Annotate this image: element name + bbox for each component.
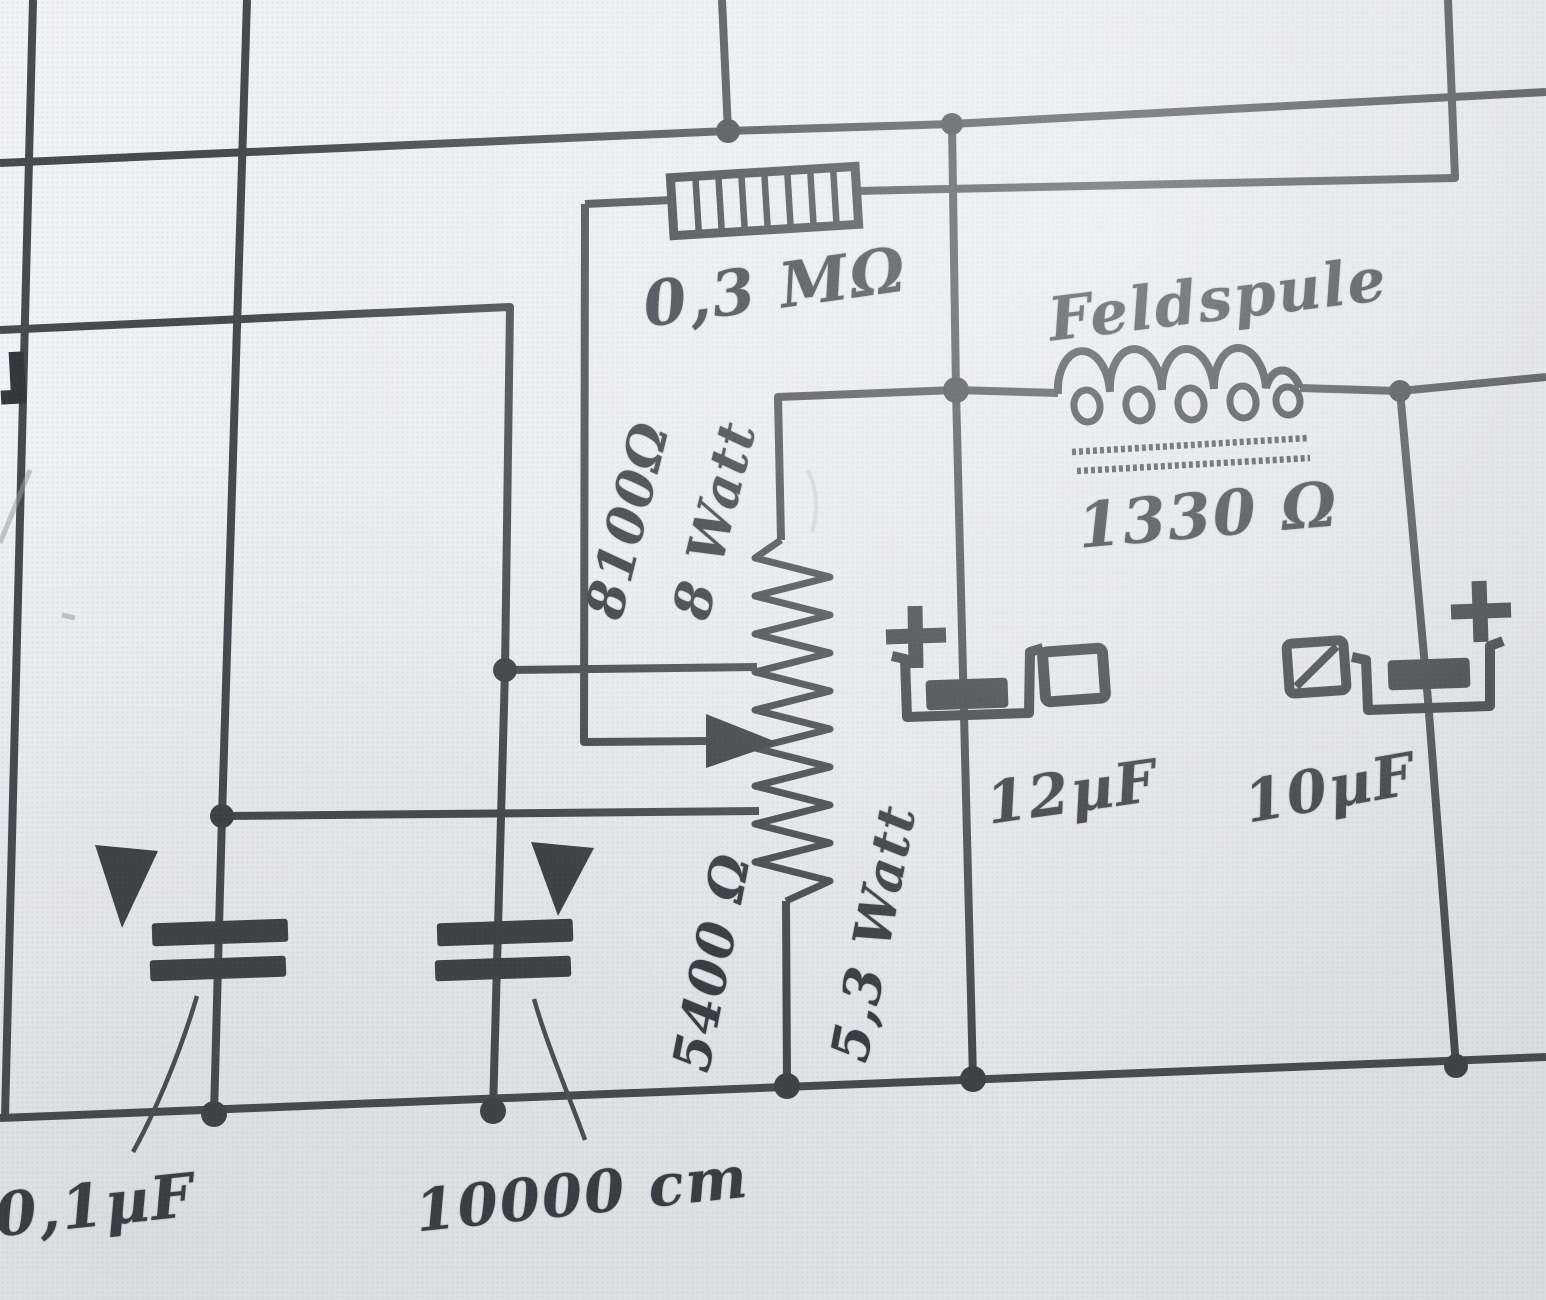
capacitor-10000cm-symbol [435,919,574,982]
wire-second-vertical [214,0,247,1114]
polarity-arrow-icon [531,842,594,916]
wire-resistor-right-lead [857,0,1455,191]
wire-top-bus [0,92,1546,163]
wiper-arrow-icon [706,714,779,768]
capacitor-10uF-symbol [1352,581,1511,710]
schematic-photo: 0,3 MΩ Feldspule 1330 Ω 8100Ω 8 Watt 540… [0,0,1546,1300]
terminal-square-slashed-icon [1286,640,1346,694]
wire-top-stub [722,0,728,131]
wire-bottom-bus [0,1057,1546,1118]
wire-center-vertical [952,124,973,1079]
coil-core-lines [1072,438,1310,471]
wire-left-branch [0,307,510,1111]
terminal-square-icon [1042,648,1105,702]
resistor-0p3M-symbol [670,166,858,235]
plus-icon [1451,581,1511,642]
wire-coil-left-lead [956,390,1058,393]
schematic-canvas [0,0,1546,1300]
wire-right-vertical [1400,391,1456,1066]
edge-mark [0,351,26,404]
wire-divider-bottom [786,901,787,1086]
polarity-arrow-icon [95,845,158,928]
wire-resistor-left-lead [585,200,672,204]
wire-divider-top [778,390,956,540]
divider-zigzag [755,540,830,901]
leader-lines [133,996,585,1152]
wire-coil-right-lead [1300,377,1546,391]
field-coil-symbol [1058,348,1302,424]
wire-left-vertical [5,0,33,1117]
wire-tap-upper [505,667,757,670]
wire-tap-lower [222,811,759,816]
